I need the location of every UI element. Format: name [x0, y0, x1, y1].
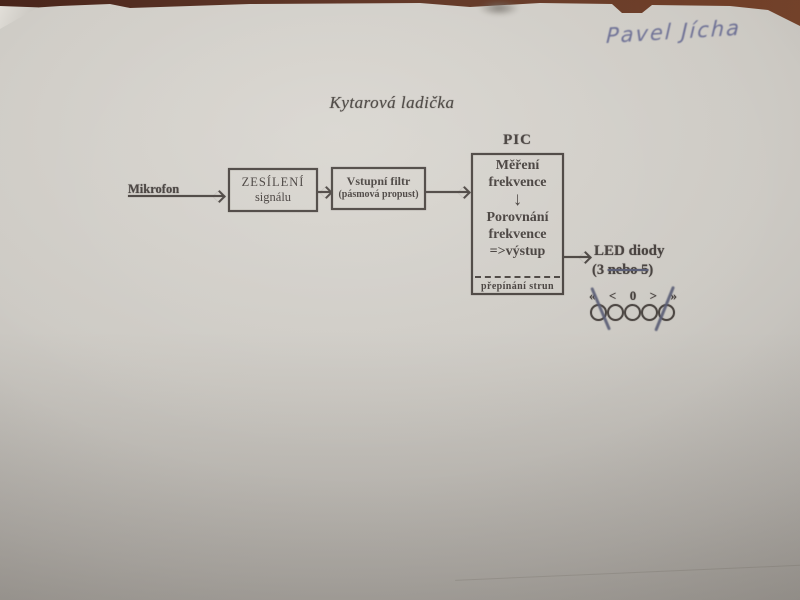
pic-step2-line3: =>výstup	[473, 243, 562, 260]
pic-step2-line2: frekvence	[473, 226, 562, 243]
amplifier-line2: signálu	[230, 190, 316, 205]
led-count-prefix: (3	[592, 262, 608, 278]
pic-step1-line1: Měření	[473, 157, 562, 174]
led-symbol-sharp-icon: >	[650, 288, 657, 304]
pic-dashed-divider	[475, 276, 560, 278]
mikrofon-arrow-head-icon	[213, 190, 226, 203]
arrow-pic-to-led-head-icon	[579, 251, 592, 264]
pic-label: PIC	[471, 132, 564, 149]
arrow-filter-to-pic-head-icon	[458, 186, 471, 199]
pic-down-arrow-icon: ↓	[473, 191, 562, 209]
amplifier-block: ZESÍLENÍ signálu	[228, 168, 318, 212]
led-count-label: (3 nebo 5)	[592, 262, 653, 279]
filter-line1: Vstupní filtr	[333, 174, 424, 188]
led-output-label: LED diody	[594, 243, 664, 260]
block-diagram: Kytarová ladička Mikrofon ZESÍLENÍ signá…	[0, 0, 800, 600]
led-circle	[607, 304, 624, 321]
led-count-suffix: )	[648, 262, 653, 278]
led-symbol-flat-icon: <	[609, 288, 616, 304]
mikrofon-arrow-line	[128, 195, 223, 197]
led-symbol-in-tune-icon: 0	[630, 288, 637, 304]
filter-line2: (pásmová propust)	[333, 188, 424, 201]
pic-block: Měření frekvence ↓ Porovnání frekvence =…	[471, 153, 564, 295]
amplifier-line1: ZESÍLENÍ	[230, 175, 316, 190]
led-symbols-row: « < 0 > »	[589, 288, 677, 304]
led-circle	[624, 304, 641, 321]
photo-of-paper: Kytarová ladička Mikrofon ZESÍLENÍ signá…	[0, 0, 800, 600]
diagram-title: Kytarová ladička	[312, 93, 472, 113]
led-circle	[641, 304, 658, 321]
led-count-struck: nebo 5	[608, 262, 649, 278]
pic-step2-line1: Porovnání	[473, 209, 562, 226]
pic-footer-label: přepínání strun	[473, 281, 562, 292]
input-filter-block: Vstupní filtr (pásmová propust)	[331, 167, 426, 210]
